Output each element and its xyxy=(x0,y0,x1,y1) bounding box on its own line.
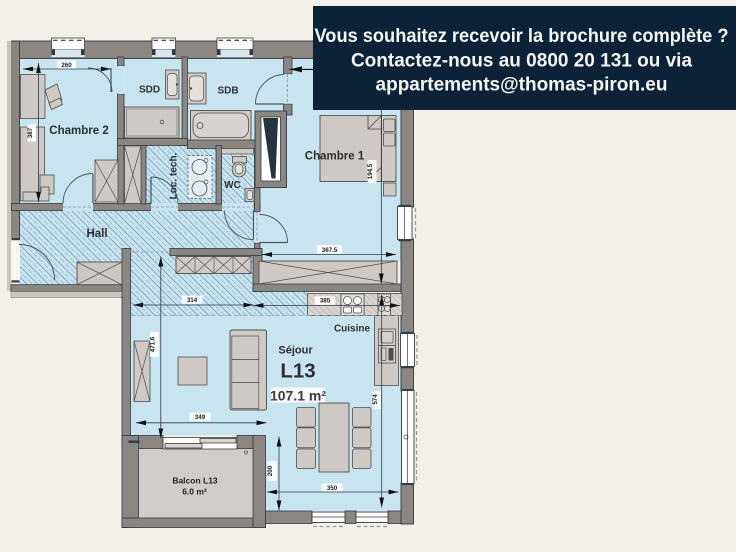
svg-text:Chambre 2: Chambre 2 xyxy=(49,125,108,137)
svg-text:387: 387 xyxy=(27,127,34,138)
svg-text:L13: L13 xyxy=(280,360,315,383)
svg-text:574: 574 xyxy=(372,394,379,405)
svg-text:Balcon L13: Balcon L13 xyxy=(172,476,218,486)
svg-text:194.5: 194.5 xyxy=(367,163,374,179)
svg-text:Hall: Hall xyxy=(86,228,107,240)
svg-text:260: 260 xyxy=(61,62,72,69)
svg-text:WC: WC xyxy=(224,180,241,191)
svg-text:appartements@thomas-piron.eu: appartements@thomas-piron.eu xyxy=(376,75,668,96)
svg-text:Séjour: Séjour xyxy=(278,345,313,357)
svg-text:6.0 m²: 6.0 m² xyxy=(182,487,207,497)
svg-text:Cuisine: Cuisine xyxy=(334,324,371,335)
svg-text:200: 200 xyxy=(267,465,274,476)
svg-text:Chambre 1: Chambre 1 xyxy=(305,151,365,163)
svg-text:314: 314 xyxy=(187,297,198,304)
svg-text:Vous souhaitez recevoir la bro: Vous souhaitez recevoir la brochure comp… xyxy=(315,26,729,47)
svg-text:SDD: SDD xyxy=(139,85,160,96)
svg-text:350: 350 xyxy=(327,485,338,492)
svg-text:367.5: 367.5 xyxy=(322,247,338,254)
svg-text:Contactez-nous au 0800 20 131: Contactez-nous au 0800 20 131 ou via xyxy=(351,51,693,72)
svg-text:349: 349 xyxy=(195,414,206,421)
svg-text:385: 385 xyxy=(320,298,331,305)
svg-text:SDB: SDB xyxy=(217,86,238,97)
svg-text:107.1 m²: 107.1 m² xyxy=(270,388,326,404)
svg-text:Loc. tech.: Loc. tech. xyxy=(169,152,180,199)
svg-text:471.6: 471.6 xyxy=(150,336,157,352)
